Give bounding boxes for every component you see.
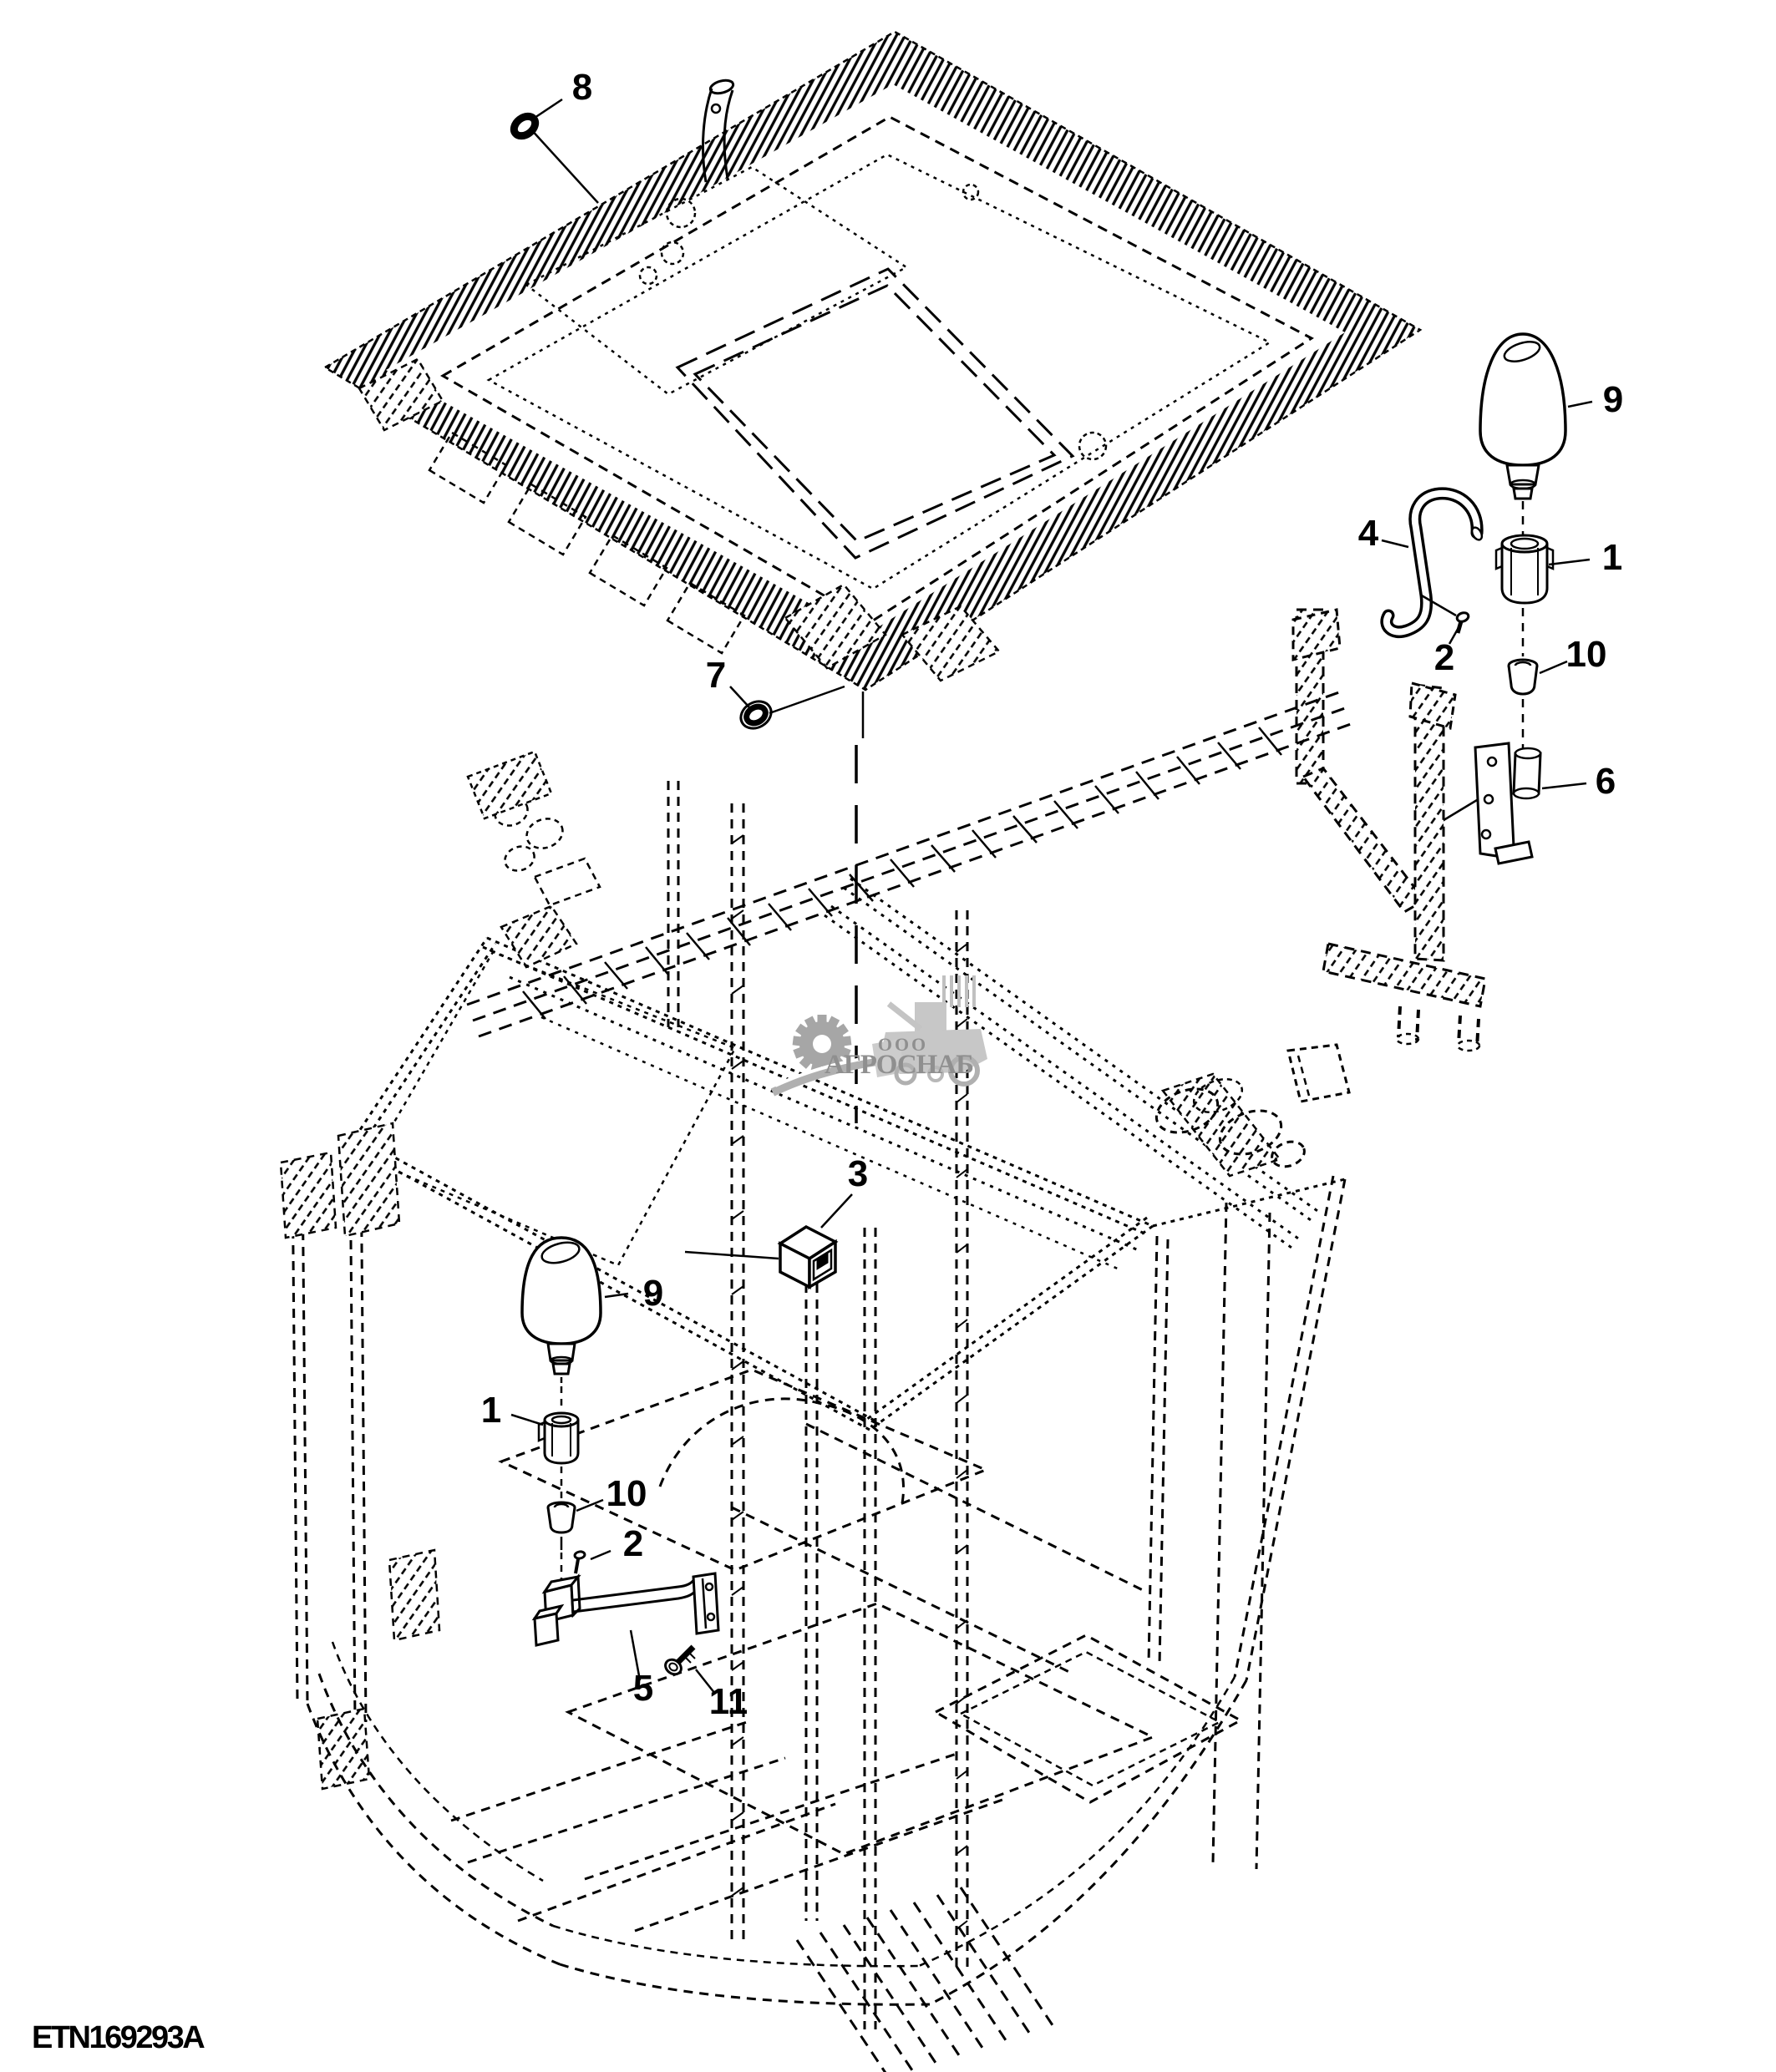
svg-text:6: 6	[1596, 761, 1616, 802]
svg-text:9: 9	[1603, 379, 1623, 420]
svg-text:3: 3	[848, 1153, 868, 1194]
svg-text:1: 1	[1602, 537, 1622, 578]
svg-text:2: 2	[1434, 637, 1454, 678]
svg-text:2: 2	[623, 1523, 643, 1564]
svg-text:АГРОСНАБ: АГРОСНАБ	[825, 1050, 973, 1080]
svg-text:7: 7	[706, 655, 726, 696]
svg-text:8: 8	[572, 67, 592, 108]
svg-text:5: 5	[633, 1668, 653, 1709]
svg-text:1: 1	[481, 1390, 501, 1431]
svg-text:4: 4	[1358, 513, 1379, 554]
svg-text:10: 10	[606, 1473, 647, 1514]
svg-text:10: 10	[1566, 634, 1607, 675]
svg-text:ETN169293A: ETN169293A	[32, 2020, 205, 2055]
svg-text:11: 11	[709, 1681, 748, 1722]
svg-text:9: 9	[643, 1273, 663, 1314]
